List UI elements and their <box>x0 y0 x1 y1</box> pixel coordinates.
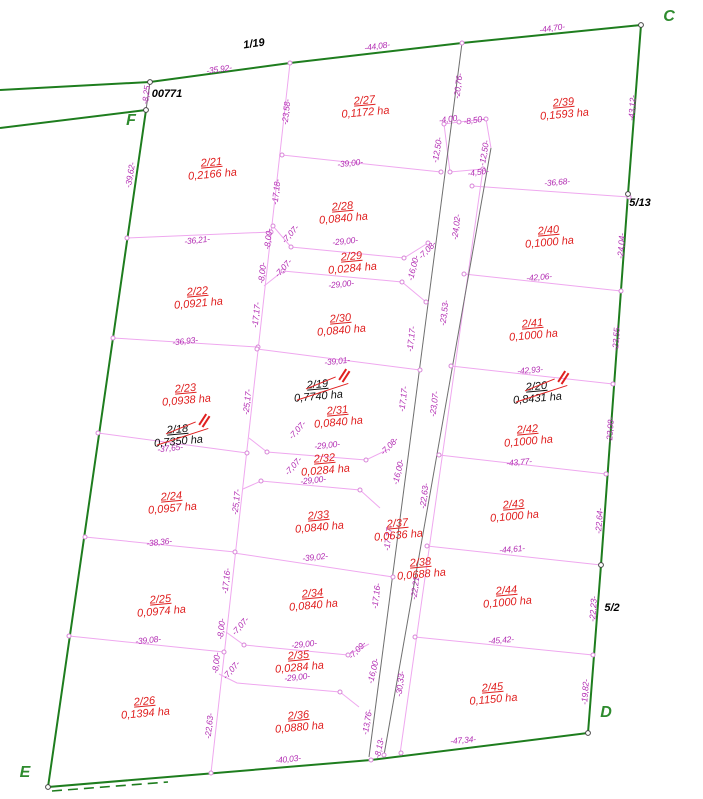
dimension-label: -24,04- <box>615 233 627 259</box>
dimension-label: -29,00- <box>314 439 340 452</box>
parcel-label: 2/360,0880 ha <box>274 708 325 737</box>
parcel-label: 2/230,0938 ha <box>161 381 212 410</box>
parcel-label: 2/440,1000 ha <box>482 583 533 612</box>
dimension-label: -17,16- <box>220 568 233 594</box>
dimension-label: -44,61- <box>499 543 525 555</box>
cancelled-parcel-label: 2/200,8431 ha <box>512 379 563 408</box>
dimension-label: -23,58- <box>280 99 293 125</box>
map-labels-layer: -35,92--44,08--44,70--8,25-39,62--43,12-… <box>0 0 703 799</box>
cadastral-map: -35,92--44,08--44,70--8,25-39,62--43,12-… <box>0 0 703 799</box>
cancellation-tick <box>557 370 566 382</box>
neighbor-parcel-label: 1/19 <box>243 37 266 52</box>
dimension-label: -23,07- <box>427 391 440 418</box>
dimension-label: -22,63- <box>203 713 216 739</box>
dimension-label: -13,76- <box>360 709 374 736</box>
dimension-label: -16,00- <box>405 254 421 281</box>
parcel-label: 2/270,1172 ha <box>340 93 390 122</box>
parcel-label: 2/420,1000 ha <box>503 422 554 451</box>
dimension-label: -22,23- <box>587 596 599 622</box>
dimension-label: -16,00- <box>390 458 406 485</box>
dimension-label: -42,93- <box>517 364 543 376</box>
dimension-label: -36,21- <box>184 234 210 247</box>
dimension-label: -39,08- <box>135 634 161 647</box>
dimension-label: -8,00- <box>210 652 222 674</box>
dimension-label: -29,00- <box>328 278 354 291</box>
parcel-label: 2/330,0840 ha <box>294 508 345 537</box>
dimension-label: -24,02- <box>449 214 462 241</box>
boundary-corner-letter: C <box>663 8 675 26</box>
dimension-label: -47,34- <box>450 734 476 746</box>
dimension-label: -12,50- <box>430 137 444 164</box>
neighbor-parcel-label: 5/13 <box>629 197 650 209</box>
dimension-label: -43,12- <box>626 95 638 121</box>
parcel-label: 2/410,1000 ha <box>508 316 559 345</box>
dimension-label: -39,01- <box>324 355 350 368</box>
dimension-label: -45,42- <box>488 634 514 646</box>
parcel-label: 2/430,1000 ha <box>489 497 540 526</box>
dimension-label: -4,50- <box>467 166 489 179</box>
dimension-label: -8,00- <box>262 228 274 250</box>
dimension-label: -7,07- <box>286 419 307 441</box>
parcel-label: 2/390,1593 ha <box>539 95 590 124</box>
cancelled-parcel-label: 2/190,7740 ha <box>293 377 344 406</box>
dimension-label: -7,07- <box>279 223 300 245</box>
dimension-label: -39,02- <box>302 551 328 564</box>
cancelled-parcel-label: 2/180,7350 ha <box>153 422 204 451</box>
dimension-label: -22,63- <box>417 483 430 510</box>
dimension-label: -17,18- <box>270 179 283 205</box>
parcel-label: 2/320,0284 ha <box>300 451 351 480</box>
parcel-label: 2/210,2166 ha <box>187 155 238 184</box>
dimension-label: -8,50- <box>463 114 485 127</box>
neighbor-parcel-label: 00771 <box>152 88 183 100</box>
dimension-label: -7,07- <box>220 659 241 681</box>
dimension-label: -8,13- <box>372 737 386 760</box>
dimension-label: -8,00- <box>215 618 227 640</box>
dimension-label: -7,08- <box>378 435 400 457</box>
dimension-label: -29,00- <box>332 235 358 248</box>
dimension-label: -30,33- <box>393 671 406 698</box>
dimension-label: -42,06- <box>526 271 552 283</box>
parcel-label: 2/310,0840 ha <box>313 403 364 432</box>
parcel-label: 2/220,0921 ha <box>173 284 224 313</box>
parcel-label: 2/240,0957 ha <box>147 489 198 518</box>
dimension-label: -25,17- <box>241 389 254 415</box>
dimension-label: -44,08- <box>364 39 391 52</box>
boundary-corner-letter: F <box>126 112 136 130</box>
dimension-label: -39,00- <box>337 157 363 170</box>
dimension-label: -39,62- <box>123 162 137 189</box>
boundary-corner-letter: D <box>600 704 612 722</box>
dimension-label: -17,17- <box>250 302 263 328</box>
dimension-label: -23,53- <box>437 300 450 327</box>
dimension-label: -36,93- <box>172 335 198 348</box>
dimension-label: -23,08- <box>604 417 616 443</box>
boundary-corner-letter: E <box>20 764 31 782</box>
neighbor-parcel-label: 5/2 <box>604 602 619 614</box>
parcel-label: 2/450,1150 ha <box>468 680 518 709</box>
dimension-label: -38,36- <box>146 536 172 549</box>
dimension-label: -17,16- <box>369 583 382 610</box>
dimension-label: -17,17- <box>396 386 409 413</box>
dimension-label: -43,77- <box>506 456 532 468</box>
dimension-label: -25,17- <box>230 489 243 515</box>
dimension-label: -17,17- <box>404 326 417 353</box>
dimension-label: -20,76- <box>451 73 464 100</box>
dimension-label: -36,68- <box>544 176 570 188</box>
parcel-label: 2/350,0284 ha <box>274 648 325 677</box>
parcel-label: 2/290,0284 ha <box>327 249 378 278</box>
cancellation-tick <box>338 368 347 380</box>
dimension-label: -16,00- <box>365 657 381 684</box>
parcel-label: 2/250,0974 ha <box>136 592 187 621</box>
parcel-label: 2/400,1000 ha <box>524 223 575 252</box>
parcel-label: 2/280,0840 ha <box>318 199 369 228</box>
dimension-label: -12,50- <box>477 140 491 167</box>
dimension-label: -7,09- <box>346 639 368 661</box>
dimension-label: -19,82- <box>579 679 591 705</box>
dimension-label: -22,64- <box>593 508 605 534</box>
parcel-label: 2/370,0636 ha <box>373 516 424 545</box>
dimension-label: -7,07- <box>229 615 250 637</box>
dimension-label: -40,03- <box>275 753 301 766</box>
dimension-label: -7,07- <box>272 257 293 279</box>
parcel-label: 2/380,0688 ha <box>396 555 447 584</box>
dimension-label: -8,25 <box>140 85 152 104</box>
parcel-label: 2/260,1394 ha <box>120 694 171 723</box>
dimension-label: -23,55- <box>610 325 622 351</box>
dimension-label: -35,92- <box>206 62 233 75</box>
dimension-label: -4,00 <box>438 113 458 125</box>
dimension-label: -44,70- <box>539 21 566 34</box>
cancellation-tick <box>198 413 207 425</box>
dimension-label: -8,00- <box>256 262 268 284</box>
parcel-label: 2/340,0840 ha <box>288 586 339 615</box>
parcel-label: 2/300,0840 ha <box>316 311 367 340</box>
